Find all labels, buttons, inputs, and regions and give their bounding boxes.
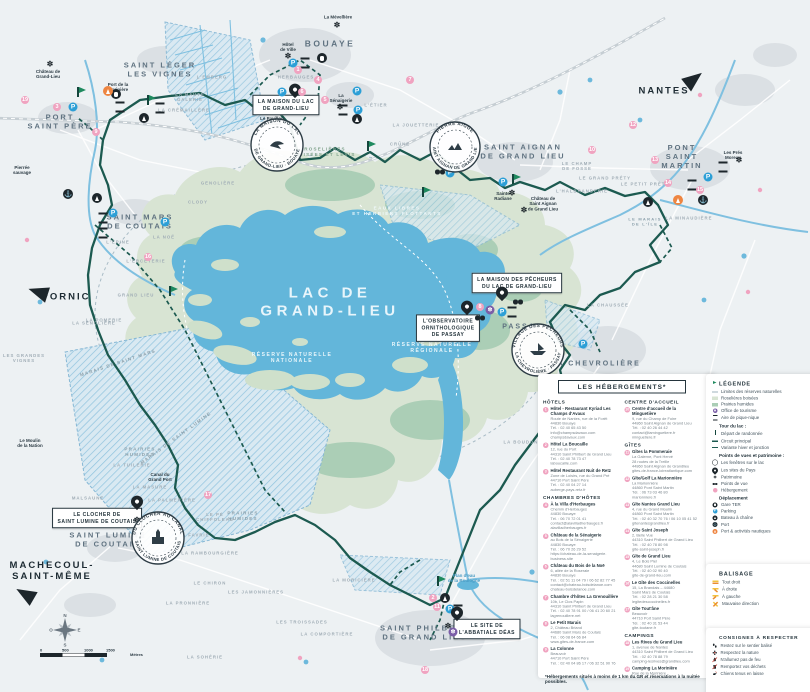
site-stamp: PIERRE AIGÜESAINT AIGNAN DE GRAND LIEU [429, 121, 481, 173]
consigne-item-label: Restez sur le sentier balisé [721, 643, 773, 648]
legend-item: Circuit principal [712, 439, 800, 444]
site-stamp: VILLAGE DES PÊCHEURSLA CHEVROLIÈRE · PAS… [511, 323, 565, 377]
legend-dash-dark-swatch [712, 447, 718, 448]
legend-item: Roselières boisées [712, 396, 800, 401]
accommodation-number-badge: 15 [625, 555, 631, 561]
accommodation-entry: 16Le Gîte des Coccinelles15, La Brandais… [625, 580, 702, 604]
accommodation-entry: 13Gîte Nantes Grand Lieu4, rue du Grand … [625, 502, 702, 526]
accommodations-columns: HÔTELS1Hôtel - Restaurant Kyriad Les Cha… [543, 397, 701, 679]
legend-pin-icon [712, 467, 718, 473]
consignes-rows: Restez sur le sentier baliséRespectez la… [712, 643, 800, 677]
legend-item-label: Port [721, 522, 729, 527]
legend-item: Hébergement [712, 488, 800, 493]
accommodation-entry: 7Chambre d'hôtes La Grenouillère10b, Le … [543, 594, 620, 618]
accommodation-section-title: CAMPINGS [625, 633, 702, 639]
balisage-panel: BALISAGE Tout droitÀ droiteÀ gaucheMauva… [706, 564, 810, 632]
scale-row: 050010001500Mètres [40, 648, 143, 657]
legend-pin-glyph [711, 466, 719, 474]
legend-item-label: Patrimoine [721, 475, 742, 480]
site-callout: LE CLOCHER DE SAINT LUMINE DE COUTAIS [52, 508, 142, 529]
legend-item: Aire de pique-nique [712, 415, 800, 421]
site-callout: LA MAISON DES PÊCHEURS DU LAC DE GRAND-L… [472, 273, 563, 294]
accommodation-detail-line: camping-lesrives@grandlieu.com [632, 659, 693, 664]
accommodation-entry-body: Gîte de Grand Lieu4, Le Bois Piel44680 S… [632, 554, 686, 578]
legend-boat-glyph [713, 515, 718, 520]
legend-picnic-icon [712, 415, 718, 421]
accommodation-number-badge: 5 [543, 533, 549, 539]
accommodation-number-badge: 10 [625, 407, 631, 413]
site-stamp: LA MAISON DU LACDE GRAND-LIEU · BOUAYE [250, 118, 304, 172]
balisage-item-label: Mauvaise direction [722, 602, 759, 607]
accommodation-detail-line: alavilladherbauges.fr [551, 526, 604, 531]
accommodations-panel: LES HÉBERGEMENTS* HÔTELS1Hôtel - Restaur… [538, 374, 716, 678]
balisage-rows: Tout droitÀ droiteÀ gaucheMauvaise direc… [712, 580, 800, 607]
scale-tick: 1000 [84, 648, 106, 653]
legend-item: Bateau à chaîne [712, 515, 800, 520]
legend-binocs-icon [712, 483, 718, 486]
legend-item: ⚓Port [712, 522, 800, 527]
scale-segment [63, 654, 85, 657]
legend-parking-icon: P [712, 509, 718, 514]
consigne-item-label: N'allumez pas de feu [721, 657, 761, 662]
legend-item-label: Prairies humides [721, 402, 754, 407]
scale-bar-segments [40, 653, 107, 657]
accommodation-number-badge: 3 [543, 469, 549, 475]
accommodation-detail-line: gites-de-france-loireatlantique.com [632, 469, 692, 474]
accommodations-footnote: *Hébergements situés à moins de 1 km du … [545, 674, 705, 684]
accommodation-number-badge: 16 [625, 581, 631, 587]
svg-text:E: E [77, 628, 80, 633]
legend-boat-icon [712, 515, 718, 520]
legend-item: Variante hiver et jonction [712, 445, 800, 450]
consigne-item: Restez sur le sentier balisé [712, 643, 800, 649]
legend-item-label: Les sites du Pays [721, 468, 755, 473]
consigne-dog-icon [712, 671, 718, 677]
balisage-straight-icon [712, 580, 719, 586]
consignes-panel: CONSIGNES À RESPECTER Restez sur le sent… [706, 628, 810, 692]
legend-swatch-green-icon [712, 403, 718, 407]
accommodations-column: CENTRE D'ACCUEIL10Centre d'accueil de la… [625, 397, 702, 679]
accommodation-number-badge: 18 [625, 641, 631, 647]
accommodation-entry: 5Château de la Sénaigerieau Bois de la S… [543, 533, 620, 561]
legend-nautic-glyph [713, 529, 718, 534]
legend-tourisme-glyph: ✽ [713, 409, 718, 414]
balisage-right-icon [712, 587, 719, 593]
accommodation-entry: 8Le Petit Marais2, Château Briand44680 S… [543, 621, 620, 645]
legend-circle-icon [712, 460, 718, 466]
legend-item: Prairies humides [712, 402, 800, 407]
legend-panel: LÉGENDE Limites des réserves naturellesR… [706, 374, 810, 568]
accommodation-entry-body: Gîte Nantes Grand Lieu4, rue du Grand Mo… [632, 502, 697, 526]
accommodation-entry-body: Château de la Sénaigerieau Bois de la Sé… [551, 533, 607, 561]
accommodation-detail-line: lagrenouillere.net [551, 613, 619, 618]
legend-item: ✽Office de tourisme [712, 409, 800, 414]
legend-item-label: Limites des réserves naturelles [721, 390, 782, 395]
consigne-item-label: Chiens tenus en laisse [721, 671, 764, 676]
site-callout: LA MAISON DU LAC DE GRAND-LIEU [252, 95, 319, 116]
direction-label: PORNIC [42, 292, 91, 303]
accommodation-entry: 14Gîte Saint Joseph2, Belle Vue44310 Sai… [625, 528, 702, 552]
balisage-item-label: À droite [722, 587, 737, 592]
balisage-item: À droite [712, 587, 800, 593]
scale-tick: 500 [62, 648, 84, 653]
accommodation-entry-body: À la Villa d'HerbaugesChemin d'Herbauges… [551, 502, 604, 530]
accommodations-title: LES HÉBERGEMENTS* [558, 380, 686, 394]
consignes-title: CONSIGNES À RESPECTER [719, 635, 800, 641]
accommodation-detail-line: gite-de-grand-lieu.com [632, 573, 686, 578]
legend-item: PParking [712, 509, 800, 514]
accommodation-number-badge: 9 [543, 647, 549, 653]
legend-pink-swatch [713, 488, 718, 493]
svg-text:O: O [49, 628, 53, 633]
accommodation-entry-body: Gîte/Golf La MarionnièreLa Marionnière44… [632, 476, 682, 500]
legend-item-label: Port & activités nautiques [721, 529, 771, 534]
legend-train-glyph [713, 502, 718, 507]
scale-segment [85, 654, 107, 657]
accommodation-detail-line: marionniere.fr [632, 495, 682, 500]
legend-nautic-icon [712, 529, 718, 534]
svg-text:S: S [63, 643, 66, 648]
accommodation-entry: 2Hôtel La Boucaille12, rue du Port44310 … [543, 442, 620, 466]
legend-flag-glyph [715, 430, 716, 435]
legend-swatch-lightgreen-icon [712, 396, 718, 400]
legend-flower-glyph: ✽ [713, 475, 716, 479]
accommodation-detail-line: gite-toutane.fr [632, 625, 670, 630]
legend-item-label: Office de tourisme [721, 409, 757, 414]
legend-item: Points de vue [712, 482, 800, 487]
legend-item-label: Gare TER [721, 502, 741, 507]
accommodation-entry: 3Hôtel Restaurant Nuit de RetzZone de Lo… [543, 468, 620, 492]
legend-anchor-glyph: ⚓ [713, 522, 718, 527]
direction-label: NANTES [638, 86, 689, 97]
accommodation-entry: 6Château du Bois de la Noë6, allée de la… [543, 564, 620, 592]
legend-title: LÉGENDE [719, 381, 800, 387]
balisage-item-label: Tout droit [722, 580, 740, 585]
scale-left: 050010001500 [40, 648, 128, 657]
balisage-item: Mauvaise direction [712, 601, 800, 607]
legend-section-header: Tour du lac : [719, 423, 800, 428]
accommodation-number-badge: 13 [625, 502, 631, 508]
accommodation-section-title: GÎTES [625, 443, 702, 449]
scale-unit: Mètres [130, 653, 143, 658]
legend-flag-icon [712, 430, 718, 437]
accommodation-detail-line: chateau-boisdelanoe.com [551, 587, 616, 592]
accommodation-entry: 18Les Rives du Grand Lieu1, avenue de Na… [625, 640, 702, 664]
consigne-item: Remportez vos déchets [712, 664, 800, 670]
legend-swatch-green-swatch [712, 403, 718, 407]
legend-circle-swatch [712, 460, 718, 466]
accommodation-name: Hôtel - Restaurant Kyriad Les Champs d'A… [551, 407, 620, 417]
scale-tick: 1500 [106, 648, 128, 653]
legend-item-label: Départ de randonnée [721, 431, 763, 436]
legend-rows: Limites des réserves naturellesRoselière… [712, 390, 800, 534]
accommodation-entry-body: Les Rives du Grand Lieu1, avenue de Nant… [632, 640, 693, 664]
legend-item: Départ de randonnée [712, 430, 800, 437]
accommodation-number-badge: 11 [625, 450, 631, 456]
legend-anchor-icon: ⚓ [712, 522, 718, 527]
legend-item: Gare TER [712, 502, 800, 507]
legend-item: ✽Patrimoine [712, 475, 800, 480]
site-stamp: DU CLOCHER AU CANALSAINT LUMINE DE COUTA… [131, 511, 185, 565]
legend-train-icon [712, 502, 718, 507]
legend-binocs-glyph [713, 483, 718, 486]
accommodation-entry-body: La ColonneBeauvoir44710 Port Saint PèreT… [551, 647, 616, 666]
legend-item: Les fenêtres sur le lac [712, 460, 800, 466]
accommodation-detail-line: gitenantesgrandlieu.fr [632, 521, 697, 526]
legend-line-dark-icon [712, 441, 718, 443]
accommodation-entry-body: Gîtes la PommeraieLa Galerne, Pont Hervé… [632, 450, 692, 474]
legend-item-label: Points de vue [721, 482, 748, 487]
legend-item-label: Les fenêtres sur le lac [721, 460, 764, 465]
accommodation-entry-body: Le Petit Marais2, Château Briand44680 Sa… [551, 621, 601, 645]
accommodation-name: Centre d'accueil de la Minguetière [632, 407, 701, 417]
accommodation-entry-body: Chambre d'hôtes La Grenouillère10b, Le C… [551, 594, 619, 618]
legend-item: Limites des réserves naturelles [712, 390, 800, 395]
legend-line-dark-swatch [712, 441, 718, 443]
accommodation-entry-body: Château du Bois de la Noë6, allée de la … [551, 564, 616, 592]
balisage-title: BALISAGE [719, 571, 800, 577]
accommodation-entry: 15Gîte de Grand Lieu4, Le Bois Piel44680… [625, 554, 702, 578]
legend-item-label: Aire de pique-nique [721, 415, 759, 420]
accommodation-detail-line: laboucaille.com [551, 461, 612, 466]
legend-item: Port & activités nautiques [712, 529, 800, 534]
legend-item-label: Variante hiver et jonction [721, 445, 769, 450]
site-callout: LE SITE DE L'ABBATIALE DÉAS [453, 619, 520, 640]
consigne-item: N'allumez pas de feu [712, 657, 800, 663]
accommodation-section-title: HÔTELS [543, 400, 620, 406]
consigne-boots-icon [712, 643, 718, 649]
legend-flower-icon: ✽ [712, 475, 718, 479]
scale-tick: 0 [40, 648, 62, 653]
accommodation-detail-line: business.site [551, 556, 607, 561]
consigne-waste-icon [712, 664, 718, 670]
accommodation-entry-body: Le Gîte des Coccinelles15, La Brandais –… [632, 580, 680, 604]
compass-rose: NSEO [48, 613, 82, 647]
accommodation-number-badge: 2 [543, 443, 549, 449]
legend-section-header: Points de vues et patrimoine : [719, 453, 800, 458]
direction-label: MACHECOUL- SAINT-MÊME [10, 560, 95, 582]
accommodation-number-badge: 14 [625, 529, 631, 535]
legend-dash-gray-swatch [712, 391, 718, 392]
accommodation-number-badge: 19 [625, 667, 631, 673]
consigne-item: Chiens tenus en laisse [712, 671, 800, 677]
accommodation-entry-body: Centre d'accueil de la Minguetière9, rue… [632, 407, 701, 440]
grand-lieu-trail-map: BOUAYESAINT LÉGER LES VIGNESPORT SAINT P… [0, 0, 810, 692]
accommodation-entry: 11Gîtes la PommeraieLa Galerne, Pont Her… [625, 450, 702, 474]
accommodation-entry-body: Gîte Tout'âneBeauvoir44710 Port Saint Pè… [632, 606, 670, 630]
legend-dash-dark-icon [712, 447, 718, 448]
consigne-item-label: Remportez vos déchets [721, 664, 766, 669]
accommodation-entry: 9La ColonneBeauvoir44710 Port Saint Père… [543, 647, 620, 666]
accommodation-number-badge: 17 [625, 607, 631, 613]
plan-eau-boulogne [457, 580, 479, 590]
accommodation-detail-line: Tél. : 02 40 04 86 17 / 06 32 51 90 76 [551, 661, 616, 666]
legend-item-label: Roselières boisées [721, 396, 758, 401]
accommodation-entry: 4À la Villa d'HerbaugesChemin d'Herbauge… [543, 502, 620, 530]
accommodation-entry-body: Hôtel La Boucaille12, rue du Port44310 S… [551, 442, 612, 466]
accommodation-detail-line: champsdavaux.com [551, 435, 620, 440]
scale-tick-labels: 050010001500 [40, 648, 128, 653]
balisage-item-label: À gauche [722, 594, 741, 599]
consigne-item-label: Respectez la nature [721, 650, 759, 655]
legend-tourisme-icon: ✽ [712, 409, 718, 414]
accommodation-entry: 17Gîte Tout'âneBeauvoir44710 Port Saint … [625, 606, 702, 630]
accommodation-number-badge: 7 [543, 595, 549, 601]
accommodation-entry-body: Gîte Saint Joseph2, Belle Vue44310 Saint… [632, 528, 693, 552]
legend-item-label: Hébergement [721, 488, 748, 493]
scale-bar: 050010001500Mètres [40, 648, 143, 657]
balisage-left-icon [712, 594, 719, 600]
accommodation-entry: 12Gîte/Golf La MarionnièreLa Marionnière… [625, 476, 702, 500]
legend-picnic-glyph [713, 415, 718, 421]
legend-item-label: Bateau à chaîne [721, 516, 753, 521]
scale-segment [41, 654, 63, 657]
legend-pink-icon [712, 488, 718, 493]
accommodation-number-badge: 6 [543, 564, 549, 570]
balisage-wrong-icon [712, 601, 719, 607]
balisage-item: À gauche [712, 594, 800, 600]
legend-item-label: Parking [721, 509, 736, 514]
accommodation-detail-line: minguetiere.fr [632, 435, 701, 440]
accommodation-detail-line: legitedescoccinelles.fr [632, 599, 680, 604]
consigne-item: Respectez la nature [712, 650, 800, 656]
accommodation-number-badge: 12 [625, 476, 631, 482]
accommodation-entry-body: Hôtel - Restaurant Kyriad Les Champs d'A… [551, 407, 620, 440]
accommodation-detail-line: auberge-pays-retz.fr [551, 487, 611, 492]
accommodation-number-badge: 4 [543, 502, 549, 508]
legend-parking-glyph: P [713, 509, 718, 514]
legend-section-header: Déplacement [719, 496, 800, 501]
accommodation-number-badge: 1 [543, 407, 549, 413]
consigne-fire-icon [712, 657, 718, 663]
accommodation-section-title: CENTRE D'ACCUEIL [625, 400, 702, 406]
consigne-nature-icon [712, 650, 718, 656]
accommodation-section-title: CHAMBRES D'HÔTES [543, 495, 620, 501]
accommodation-entry: 1Hôtel - Restaurant Kyriad Les Champs d'… [543, 407, 620, 440]
accommodation-entry-body: Hôtel Restaurant Nuit de RetzZone de Loi… [551, 468, 611, 492]
legend-dash-gray-icon [712, 391, 718, 392]
accommodation-number-badge: 8 [543, 621, 549, 627]
site-callout: L'OBSERVATOIRE ORNITHOLOGIQUE DE PASSAY [416, 314, 480, 341]
legend-swatch-lightgreen-swatch [712, 396, 718, 400]
accommodation-detail-line: www.gites-de-france.com [551, 639, 601, 644]
legend-item-label: Circuit principal [721, 439, 751, 444]
svg-text:N: N [63, 613, 66, 618]
legend-item: Les sites du Pays [712, 467, 800, 473]
accommodation-entry: 10Centre d'accueil de la Minguetière9, r… [625, 407, 702, 440]
accommodation-detail-line: gite-saint-joseph.fr [632, 547, 693, 552]
accommodations-column: HÔTELS1Hôtel - Restaurant Kyriad Les Cha… [543, 397, 620, 679]
balisage-item: Tout droit [712, 580, 800, 586]
